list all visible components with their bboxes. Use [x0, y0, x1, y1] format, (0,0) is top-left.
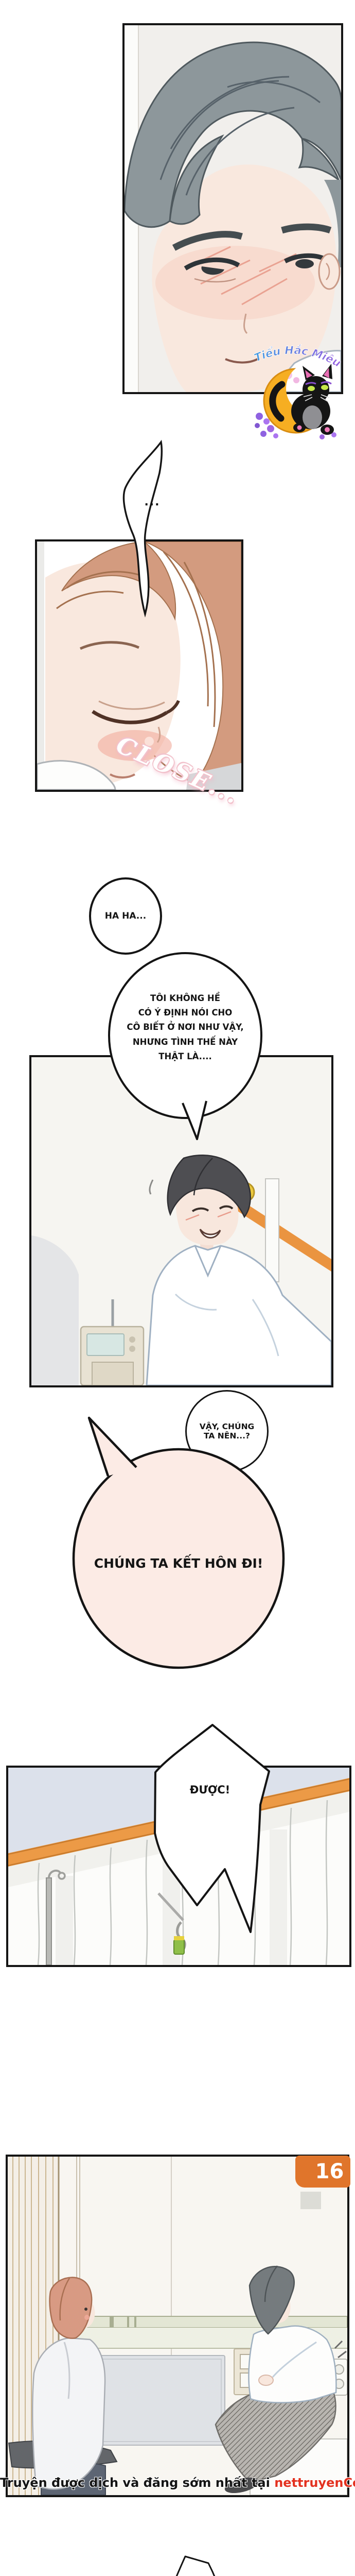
confess-line-3: CÔ BIẾT Ở NƠI NHƯ VẬY,	[127, 1021, 243, 1032]
site-watermark-text: Truyện được dịch và đăng sớm nhất tại	[0, 2476, 274, 2490]
haha-bubble: HA HA...	[89, 877, 162, 955]
ear	[319, 254, 340, 289]
panel-room-wide	[6, 2155, 349, 2497]
webtoon-page: Tiểu Hắc Miêu	[0, 0, 355, 2576]
green-clamp	[174, 1940, 184, 1954]
propose-text: CHÚNG TA KẾT HÔN ĐI!	[93, 1556, 264, 1572]
what-bubble	[154, 2550, 257, 2576]
headboard-panel	[92, 2355, 225, 2445]
site-watermark-link: nettruyenCo.vn	[274, 2476, 355, 2490]
confess-bubble: TÔI KHÔNG HỀ CÓ Ý ĐỊNH NÓI CHO CÔ BIẾT Ở…	[105, 950, 265, 1145]
hand	[259, 2375, 273, 2385]
sign-shadow	[300, 2192, 321, 2209]
confess-line-5: THẬT LÀ....	[158, 1051, 212, 1061]
cat-moon-logo: Tiểu Hắc Miêu	[250, 335, 342, 442]
wall-pole	[265, 1179, 279, 1282]
room-16-sign: 16	[295, 2156, 350, 2188]
propose-bubble	[72, 1412, 286, 1672]
site-watermark: Truyện được dịch và đăng sớm nhất tại ne…	[0, 2476, 355, 2490]
logo-text: Tiểu Hắc Miêu	[253, 344, 342, 369]
accept-bubble	[147, 1720, 275, 1939]
room-16-number: 16	[315, 2160, 344, 2183]
haha-text: HA HA...	[105, 911, 146, 921]
ellipsis-text: ...	[138, 496, 167, 510]
confess-line-2: CÓ Ý ĐỊNH NÓI CHO	[138, 1008, 233, 1018]
ellipsis-bubble	[119, 437, 184, 620]
confess-line-4: NHƯNG TÌNH THẾ NÀY	[133, 1036, 238, 1047]
white-shirt	[248, 2326, 336, 2403]
panel-5-art	[8, 2157, 347, 2495]
accept-text: ĐƯỢC!	[179, 1784, 241, 1797]
confess-line-1: TÔI KHÔNG HỀ	[150, 992, 220, 1003]
